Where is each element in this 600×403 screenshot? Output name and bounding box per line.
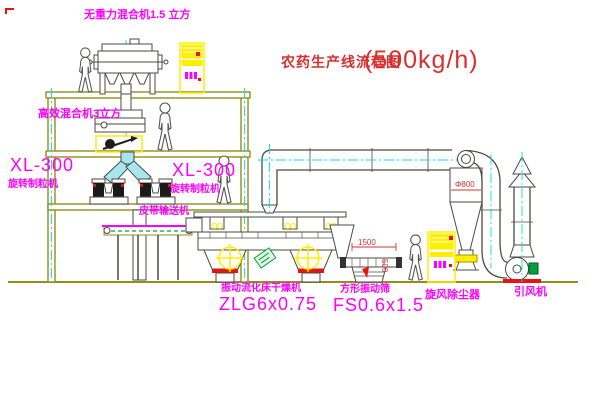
vibrating-screen: [330, 225, 402, 282]
label-gravity-free-mixer: 无重力混合机1.5 立方: [84, 10, 190, 21]
granulator-left: [90, 179, 128, 204]
person-figure-ground: [409, 235, 422, 280]
label-cyclone: 旋风除尘器: [425, 290, 480, 301]
dim-screen-height: 500: [380, 259, 388, 272]
label-dryer-name: 振动流化床干燥机: [221, 284, 301, 294]
label-granulator-left-model: XL-300: [10, 156, 74, 174]
dim-cyclone-diameter: Φ800: [455, 181, 475, 189]
label-screen-name: 方形振动筛: [340, 285, 390, 295]
label-belt-conveyor: 皮带输送机: [139, 207, 189, 217]
dim-screen-width: 1500: [358, 239, 376, 247]
label-granulator-left-name: 旋转制粒机: [8, 180, 58, 190]
control-cabinet-upper: [180, 43, 204, 93]
person-figure-top-floor: [79, 48, 92, 92]
person-figure-second-floor: [158, 103, 172, 150]
label-granulator-right-name: 旋转制粒机: [170, 185, 220, 195]
diagram-capacity: (500kg/h): [364, 48, 479, 73]
nameplate-tag: [254, 248, 276, 268]
corner-mark: [5, 8, 14, 14]
label-granulator-right-model: XL-300: [172, 161, 236, 179]
fluid-bed-dryer: [186, 212, 346, 282]
process-flow-diagram: 农药生产线流程图 (500kg/h) 无重力混合机1.5 立方 高效混合机3立方…: [0, 0, 600, 403]
exhaust-duct: [258, 144, 466, 216]
support-column: [133, 210, 146, 280]
control-cabinet-lower: [428, 232, 455, 282]
label-fan: 引风机: [514, 287, 547, 298]
label-dryer-model: ZLG6x0.75: [219, 295, 317, 313]
label-high-eff-mixer: 高效混合机3立方: [38, 109, 121, 120]
belt-conveyor: [102, 226, 194, 280]
label-screen-model: FS0.6x1.5: [333, 296, 424, 314]
